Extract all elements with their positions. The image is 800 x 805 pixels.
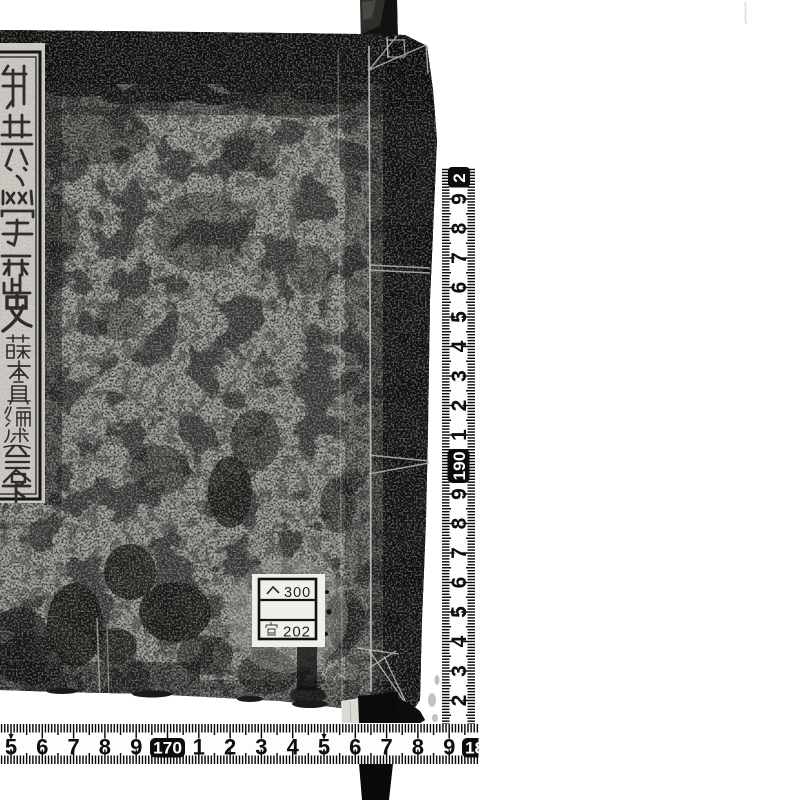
svg-text:2: 2 [224,735,236,760]
svg-text:4: 4 [448,340,471,352]
svg-text:3: 3 [448,665,471,677]
svg-text:6: 6 [36,735,48,760]
svg-text:300: 300 [284,585,311,601]
svg-text:9: 9 [448,488,471,500]
svg-text:7: 7 [67,735,79,760]
svg-text:8: 8 [448,222,471,234]
svg-text:2: 2 [448,695,471,707]
svg-text:4: 4 [448,635,471,647]
svg-text:8: 8 [448,517,471,529]
svg-text:190: 190 [450,452,469,481]
svg-text:7: 7 [448,252,471,264]
svg-text:1: 1 [193,735,205,760]
svg-text:6: 6 [349,735,361,760]
svg-text:8: 8 [412,735,424,760]
svg-text:202: 202 [283,624,311,641]
svg-text:9: 9 [448,193,471,205]
svg-text:2: 2 [450,173,469,182]
svg-text:3: 3 [255,735,267,760]
svg-text:170: 170 [153,739,182,758]
svg-text:6: 6 [448,282,471,294]
svg-text:3: 3 [448,370,471,382]
svg-text:1: 1 [448,429,471,441]
svg-text:4: 4 [287,735,300,760]
svg-text:9: 9 [130,735,142,760]
svg-text:7: 7 [448,547,471,559]
svg-text:6: 6 [448,577,471,589]
svg-text:2: 2 [448,400,471,412]
svg-text:7: 7 [380,735,392,760]
svg-text:9: 9 [443,735,455,760]
svg-text:8: 8 [99,735,111,760]
